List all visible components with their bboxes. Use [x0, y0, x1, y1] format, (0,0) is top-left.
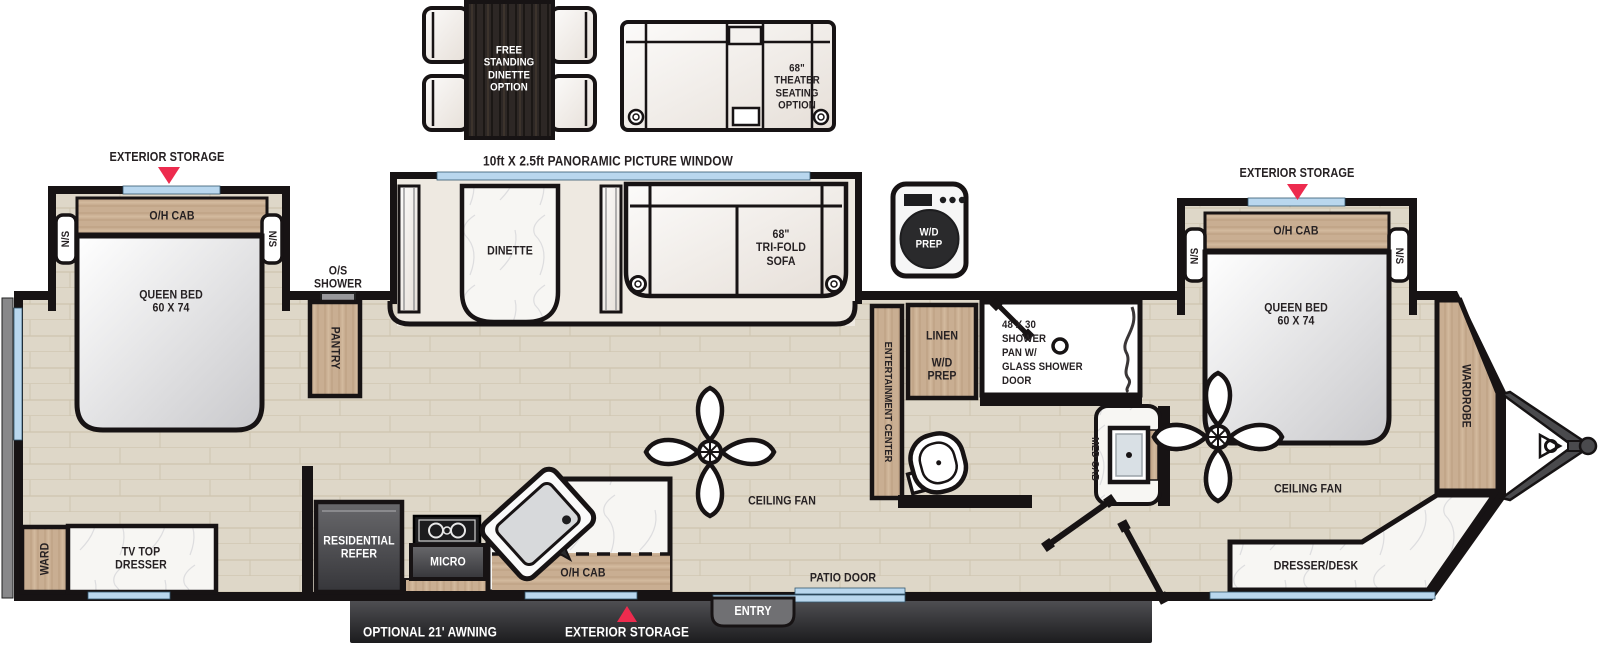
ward-label: WARD	[38, 543, 51, 576]
tri-fold-sofa	[626, 184, 846, 296]
bath-sink	[1096, 406, 1160, 504]
dinette-label: DINETTE	[487, 244, 533, 257]
rear-bumper	[2, 298, 13, 598]
tri-fold-sofa-label: 68" TRI-FOLD SOFA	[756, 228, 806, 268]
micro-label: MICRO	[430, 555, 466, 568]
tv-top-dresser-label: TV TOP DRESSER	[115, 546, 167, 573]
window-bottom-left	[88, 592, 170, 599]
front-ns-left-label: N/S	[1189, 248, 1201, 264]
exterior-storage-marker-rear	[158, 167, 180, 184]
front-ns-right-label: N/S	[1393, 248, 1405, 264]
window-front-slide	[1248, 198, 1345, 206]
rear-ns-right-label: N/S	[266, 231, 278, 247]
exterior-storage-rear-label: EXTERIOR STORAGE	[110, 150, 225, 164]
patio-door-label: PATIO DOOR	[810, 571, 876, 584]
wd-prep-label: W/D PREP	[927, 357, 956, 384]
dresser-desk-label: DRESSER/DESK	[1274, 559, 1358, 572]
wardrobe-label: WARDROBE	[1459, 364, 1472, 427]
front-queen-bed-label: QUEEN BED 60 X 74	[1264, 302, 1328, 329]
linen-label: LINEN	[926, 329, 958, 342]
window-bottom-front	[1210, 592, 1435, 599]
free-standing-dinette-label: FREE STANDING DINETTE OPTION	[484, 44, 535, 93]
front-oh-cab-label: O/H CAB	[1273, 224, 1318, 237]
theater-seating-label: 68" THEATER SEATING OPTION	[774, 62, 820, 111]
rear-oh-cab-label: O/H CAB	[149, 209, 194, 222]
window-rear-wall	[14, 308, 22, 440]
shower-pan-label: 48 X 30 SHOWER PAN W/ GLASS SHOWER DOOR	[1002, 318, 1083, 388]
cooktop-icon	[414, 516, 480, 545]
residential-refer-label: RESIDENTIAL REFER	[323, 535, 394, 562]
exterior-storage-bottom-label: EXTERIOR STORAGE	[565, 624, 689, 639]
rear-queen-bed-label: QUEEN BED 60 X 74	[139, 289, 203, 316]
panoramic-window-label: 10ft X 2.5ft PANORAMIC PICTURE WINDOW	[483, 153, 733, 168]
rear-queen-bed	[77, 236, 262, 430]
kitchen-oh-cab-label: O/H CAB	[560, 566, 605, 579]
pantry-label: PANTRY	[328, 327, 341, 370]
panoramic-picture-window	[437, 172, 810, 180]
os-shower-label: O/S SHOWER	[314, 265, 362, 292]
floorplan-diagram: FREE STANDING DINETTE OPTION 68" THEATER…	[0, 0, 1600, 650]
ceiling-fan-main-label: CEILING FAN	[748, 494, 816, 507]
patio-door	[795, 588, 905, 594]
entry-label: ENTRY	[734, 604, 771, 618]
med-cab-label: MED CAB	[1088, 437, 1100, 481]
hitch-icon	[1502, 392, 1596, 500]
window-rear-slide	[123, 186, 220, 194]
window-kitchen	[525, 592, 637, 599]
front-queen-bed	[1205, 252, 1389, 443]
entertainment-center-label: ENTERTAINMENT CENTER	[881, 342, 893, 463]
linen-cabinet	[908, 305, 976, 398]
optional-awning-label: OPTIONAL 21' AWNING	[363, 624, 497, 639]
ceiling-fan-front-label: CEILING FAN	[1274, 482, 1342, 495]
wd-prep-appliance-label: W/D PREP	[916, 227, 943, 252]
exterior-storage-front-label: EXTERIOR STORAGE	[1240, 166, 1355, 180]
rear-ns-left-label: N/S	[60, 231, 72, 247]
